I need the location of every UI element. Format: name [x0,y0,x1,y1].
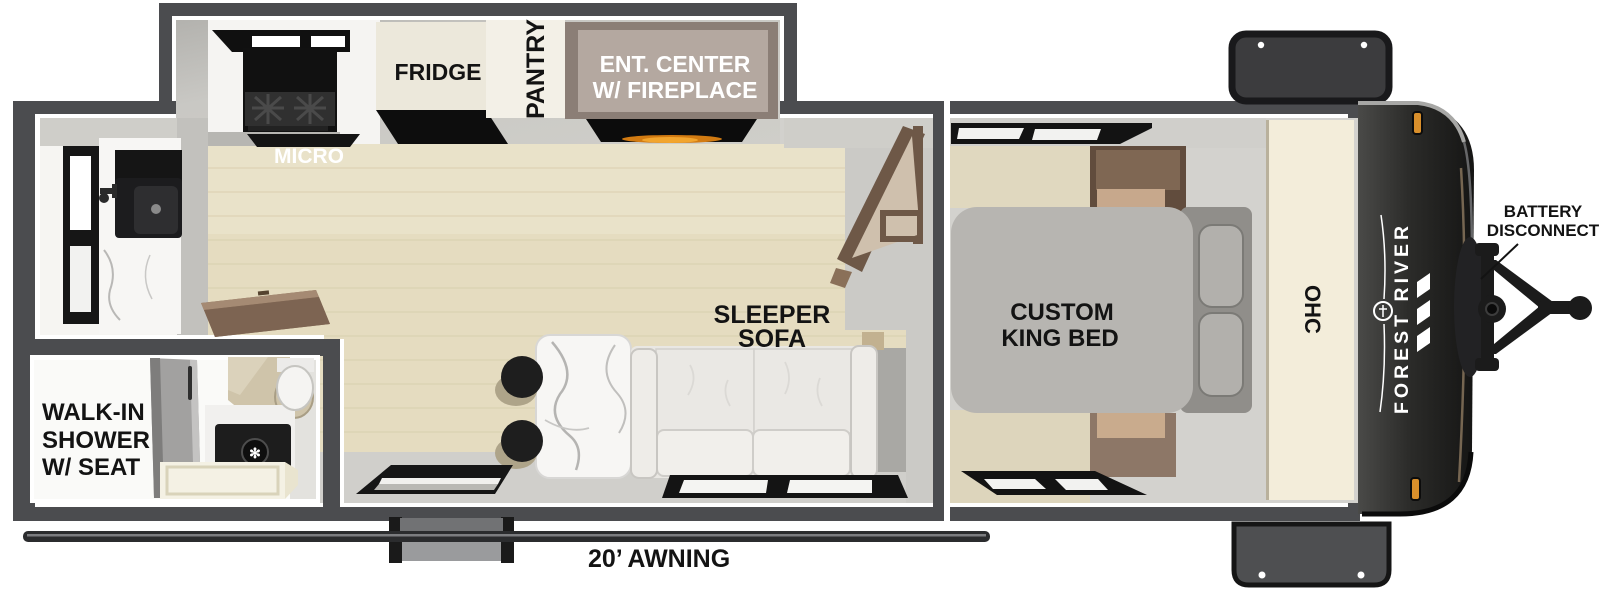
svg-text:PANTRY: PANTRY [522,19,550,119]
svg-text:✻: ✻ [249,445,261,461]
svg-text:20’ AWNING: 20’ AWNING [588,545,730,573]
svg-text:MICRO: MICRO [274,145,344,168]
svg-text:BATTERY: BATTERY [1504,202,1583,221]
svg-text:ENT. CENTER: ENT. CENTER [600,51,751,77]
svg-text:FOREST RIVER: FOREST RIVER [1391,222,1413,414]
svg-text:FRIDGE: FRIDGE [395,59,482,85]
svg-text:SHOWER: SHOWER [42,427,150,454]
svg-text:CUSTOM: CUSTOM [1010,299,1114,326]
svg-text:SOFA: SOFA [738,325,806,353]
svg-text:DISCONNECT: DISCONNECT [1487,221,1600,240]
svg-text:W/ SEAT: W/ SEAT [42,454,141,481]
svg-text:KING BED: KING BED [1001,325,1118,352]
svg-text:OHC: OHC [1300,285,1325,334]
svg-text:W/ FIREPLACE: W/ FIREPLACE [593,77,758,103]
svg-text:WALK-IN: WALK-IN [42,399,145,426]
